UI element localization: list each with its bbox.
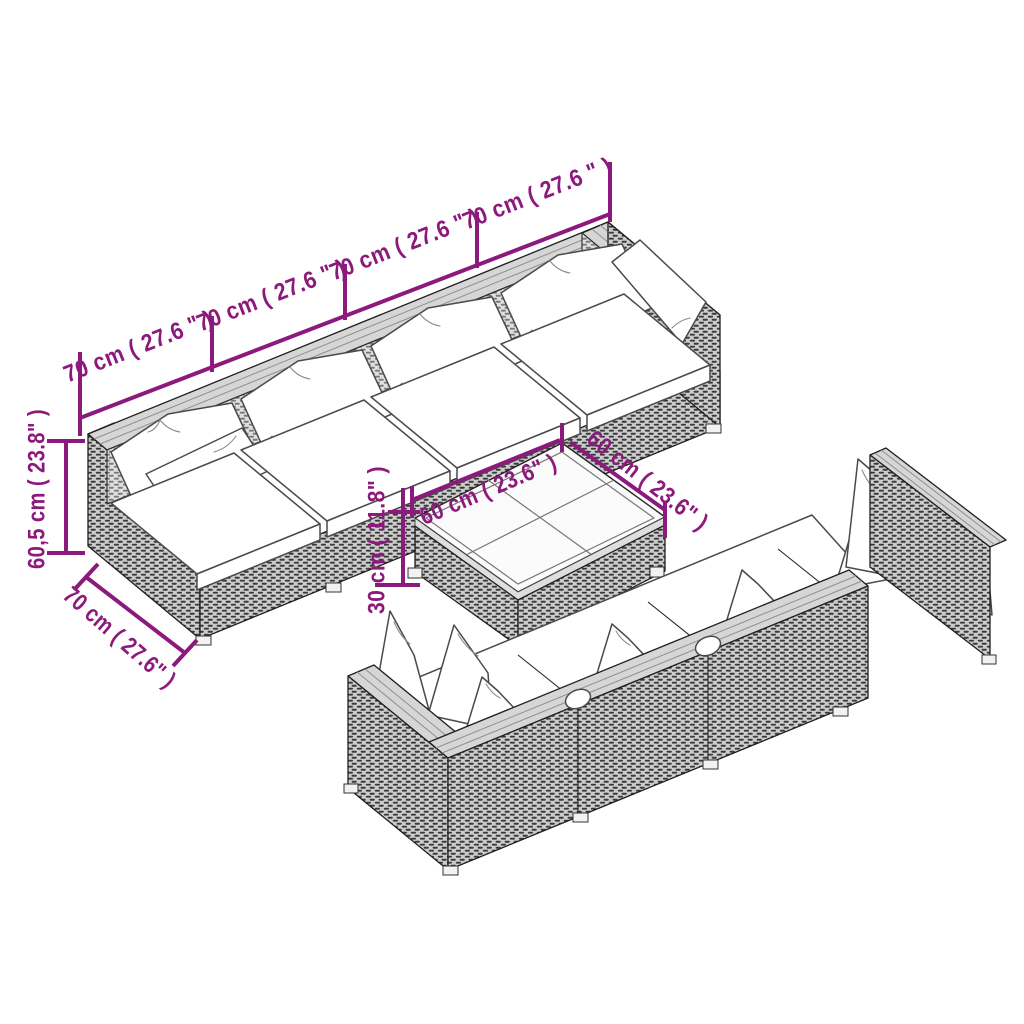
sofa-foot [573, 813, 588, 822]
diagram-canvas: 70 cm ( 27.6 " ) 70 cm ( 27.6 " ) 70 cm … [0, 0, 1024, 1024]
sofa-foot [326, 583, 341, 592]
table-foot [408, 568, 422, 578]
table-foot [650, 567, 664, 577]
sofa-foot [833, 707, 848, 716]
dimension-sofa-height: 60,5 cm ( 23.8" ) [23, 409, 85, 569]
dimension-label: 30 cm ( 11.8" ) [363, 466, 390, 614]
sofa-foot [443, 866, 458, 875]
sofa-foot [706, 424, 721, 433]
dimension-label: 60,5 cm ( 23.8" ) [23, 409, 50, 569]
sofa-foot [344, 784, 358, 793]
furniture-dimension-diagram: 70 cm ( 27.6 " ) 70 cm ( 27.6 " ) 70 cm … [0, 0, 1024, 1024]
sofa-foot [196, 636, 211, 645]
sofa-foot [982, 655, 996, 664]
sofa-foot [703, 760, 718, 769]
